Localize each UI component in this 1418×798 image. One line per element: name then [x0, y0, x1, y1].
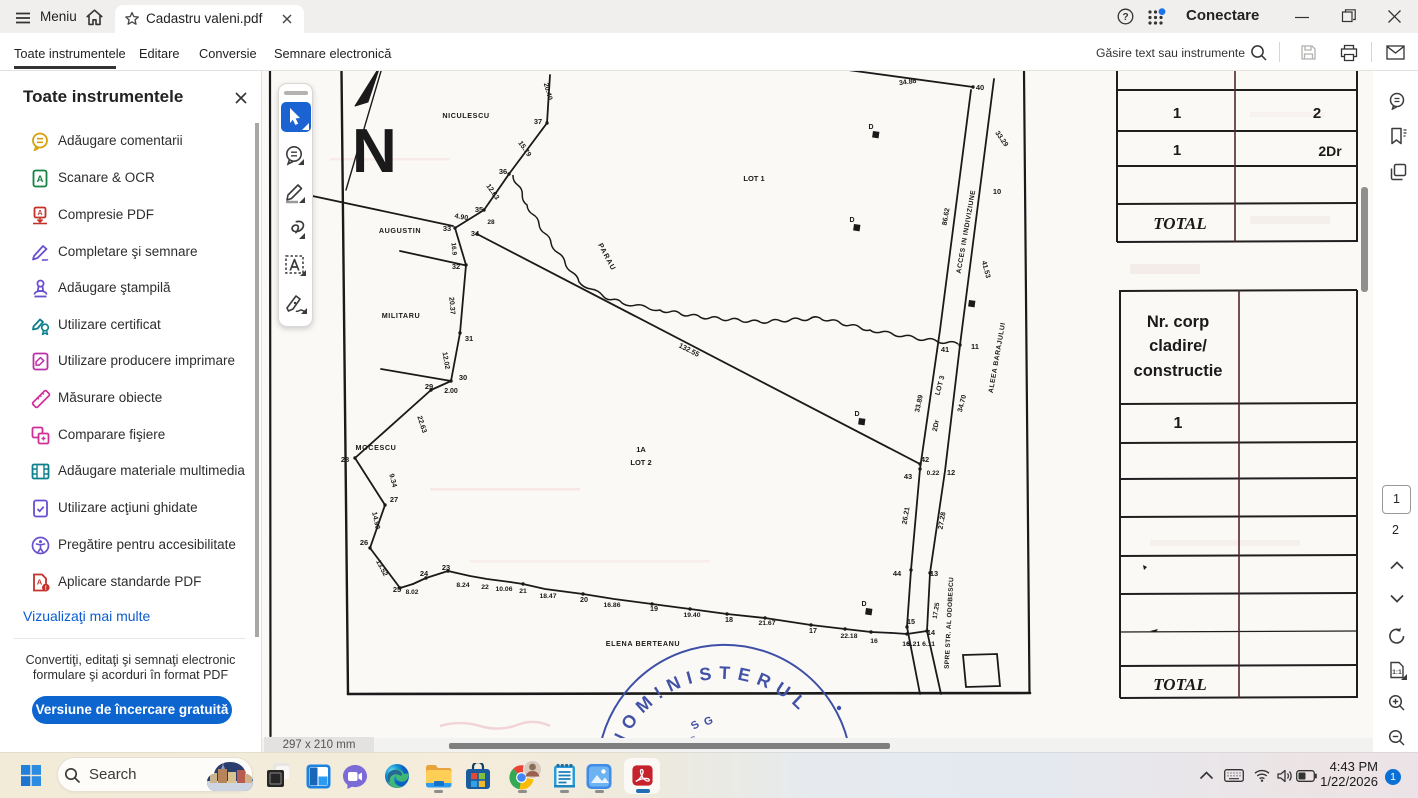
svg-text:?: ? [1122, 12, 1128, 23]
svg-text:29: 29 [425, 382, 433, 391]
svg-text:cladire/: cladire/ [1149, 337, 1207, 355]
svg-text:16: 16 [870, 638, 878, 645]
svg-text:26.21: 26.21 [902, 506, 912, 525]
svg-text:20: 20 [580, 595, 588, 604]
svg-text:ELENA BERTEANU: ELENA BERTEANU [606, 639, 680, 648]
svg-text:19: 19 [650, 604, 658, 613]
svg-text:33: 33 [443, 224, 451, 233]
svg-text:15: 15 [907, 617, 915, 626]
svg-text:MILITARU: MILITARU [382, 311, 421, 320]
svg-text:28: 28 [341, 455, 349, 464]
svg-text:33.29: 33.29 [993, 130, 1009, 148]
svg-text:4.90: 4.90 [454, 213, 469, 222]
svg-text:19.40: 19.40 [683, 612, 700, 619]
svg-text:13.52: 13.52 [374, 559, 388, 578]
svg-text:S: S [689, 718, 702, 732]
svg-text:18: 18 [725, 615, 733, 624]
svg-text:MOCESCU: MOCESCU [356, 443, 397, 452]
svg-text:17: 17 [809, 626, 817, 635]
svg-text:14: 14 [927, 628, 935, 637]
svg-text:D: D [849, 217, 854, 224]
svg-text:ALEEA BARAJULUI: ALEEA BARAJULUI [988, 322, 1007, 394]
svg-text:LOT 3: LOT 3 [935, 375, 947, 396]
svg-text:2Dr: 2Dr [1318, 143, 1342, 159]
svg-text:33.89: 33.89 [914, 394, 925, 413]
svg-text:42: 42 [921, 455, 929, 464]
svg-text:5.21 6.11: 5.21 6.11 [907, 641, 935, 648]
svg-text:SPRE STR. AL ODOBESCU: SPRE STR. AL ODOBESCU [944, 577, 956, 669]
svg-text:D: D [868, 124, 873, 131]
svg-text:35: 35 [475, 205, 483, 214]
svg-text:14.90: 14.90 [370, 511, 381, 530]
svg-text:8.02: 8.02 [406, 589, 419, 596]
svg-text:1A: 1A [636, 445, 646, 454]
svg-text:0.22: 0.22 [927, 470, 940, 477]
svg-text:31: 31 [465, 334, 473, 343]
svg-text:9.34: 9.34 [387, 473, 397, 488]
svg-text:25: 25 [393, 585, 401, 594]
svg-text:2.00: 2.00 [444, 388, 458, 395]
svg-text:41.53: 41.53 [980, 260, 991, 279]
svg-text:Nr. corp: Nr. corp [1147, 313, 1209, 331]
svg-text:16.86: 16.86 [603, 602, 620, 609]
svg-text:TOTAL: TOTAL [1153, 675, 1207, 694]
svg-text:2: 2 [1313, 105, 1321, 122]
svg-text:1:1: 1:1 [1392, 669, 1402, 676]
svg-text:36: 36 [499, 167, 507, 176]
svg-text:21: 21 [519, 588, 527, 595]
svg-text:1: 1 [1173, 142, 1181, 159]
svg-text:A: A [37, 210, 42, 217]
svg-text:20.40: 20.40 [542, 82, 553, 101]
svg-text:TOTAL: TOTAL [1153, 214, 1207, 233]
svg-text:28: 28 [487, 219, 495, 226]
svg-text:N: N [352, 117, 397, 186]
svg-text:37: 37 [534, 117, 542, 126]
svg-text:34.86: 34.86 [899, 78, 917, 87]
svg-text:2Dr: 2Dr [932, 419, 941, 432]
svg-text:22: 22 [481, 584, 489, 591]
svg-text:20.37: 20.37 [447, 297, 456, 315]
svg-text:16.9: 16.9 [449, 242, 457, 256]
svg-text:11: 11 [971, 342, 979, 351]
svg-text:LOT 1: LOT 1 [743, 174, 764, 183]
svg-text:A: A [37, 578, 43, 587]
svg-text:34: 34 [471, 229, 480, 238]
svg-text:27: 27 [390, 495, 398, 504]
svg-text:17.25: 17.25 [932, 602, 942, 620]
svg-text:86.62: 86.62 [942, 207, 952, 226]
svg-text:22.18: 22.18 [840, 633, 857, 640]
svg-text:10.06: 10.06 [495, 586, 512, 593]
svg-text:18.47: 18.47 [539, 593, 556, 600]
svg-text:AUGUSTIN: AUGUSTIN [379, 226, 421, 235]
svg-text:1: 1 [1174, 415, 1183, 432]
svg-text:23: 23 [442, 563, 450, 572]
svg-text:44: 44 [893, 569, 902, 578]
svg-text:16: 16 [902, 641, 910, 648]
svg-text:34.70: 34.70 [957, 394, 968, 413]
svg-text:12.02: 12.02 [441, 351, 451, 370]
svg-text:26: 26 [360, 538, 368, 547]
svg-text:41: 41 [941, 345, 949, 354]
svg-text:constructie: constructie [1134, 362, 1223, 380]
svg-text:LOT 2: LOT 2 [630, 458, 651, 467]
svg-text:D: D [854, 411, 859, 418]
svg-text:12: 12 [947, 468, 955, 477]
svg-text:40: 40 [976, 83, 984, 92]
svg-text:PARAU: PARAU [596, 241, 618, 272]
svg-text:D: D [861, 601, 866, 608]
svg-text:NICULESCU: NICULESCU [442, 111, 489, 120]
svg-text:1: 1 [1173, 105, 1181, 122]
svg-text:43: 43 [904, 472, 912, 481]
svg-text:!: ! [45, 586, 47, 592]
svg-text:10: 10 [993, 187, 1001, 196]
svg-text:21.67: 21.67 [758, 620, 775, 627]
svg-text:32: 32 [452, 262, 460, 271]
svg-text:8.24: 8.24 [456, 582, 469, 589]
svg-text:22.63: 22.63 [415, 415, 427, 434]
svg-text:G: G [702, 714, 715, 728]
svg-text:13: 13 [930, 569, 938, 578]
svg-text:24: 24 [420, 569, 429, 578]
svg-text:30: 30 [459, 373, 467, 382]
svg-text:15.79: 15.79 [516, 140, 532, 158]
svg-text:A: A [37, 174, 44, 185]
